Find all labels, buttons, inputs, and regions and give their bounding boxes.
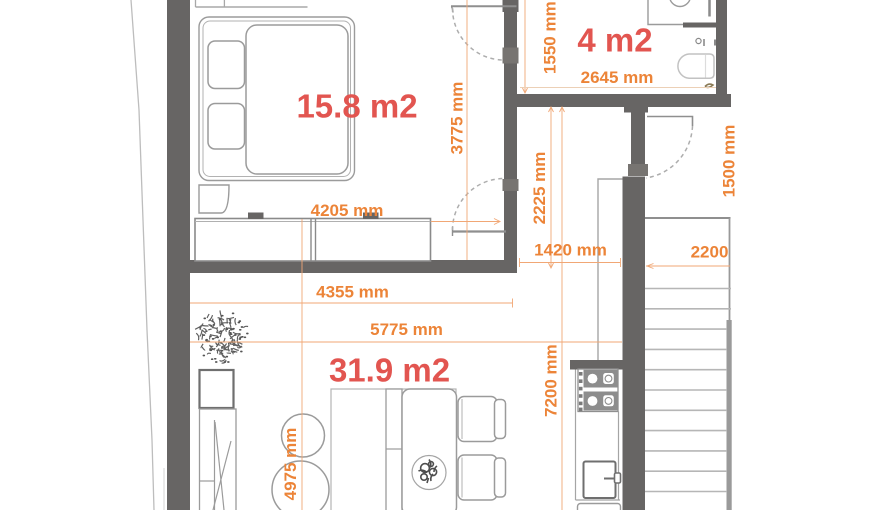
svg-text:1420 mm: 1420 mm <box>534 241 607 260</box>
svg-text:15.8 m2: 15.8 m2 <box>296 88 417 125</box>
svg-text:4975 mm: 4975 mm <box>281 428 300 501</box>
svg-text:2645 mm: 2645 mm <box>581 68 654 87</box>
svg-text:1500 mm: 1500 mm <box>720 125 739 198</box>
svg-text:31.9 m2: 31.9 m2 <box>329 352 450 389</box>
svg-text:5775 mm: 5775 mm <box>370 320 443 339</box>
svg-text:4205 mm: 4205 mm <box>311 201 384 220</box>
svg-text:2225 mm: 2225 mm <box>530 152 549 225</box>
svg-text:3775 mm: 3775 mm <box>447 82 466 155</box>
svg-text:1550 mm: 1550 mm <box>541 1 560 74</box>
svg-text:7200 mm: 7200 mm <box>542 344 561 417</box>
svg-text:4 m2: 4 m2 <box>577 22 652 59</box>
svg-text:4355 mm: 4355 mm <box>316 283 389 302</box>
svg-text:2200: 2200 <box>691 243 729 262</box>
